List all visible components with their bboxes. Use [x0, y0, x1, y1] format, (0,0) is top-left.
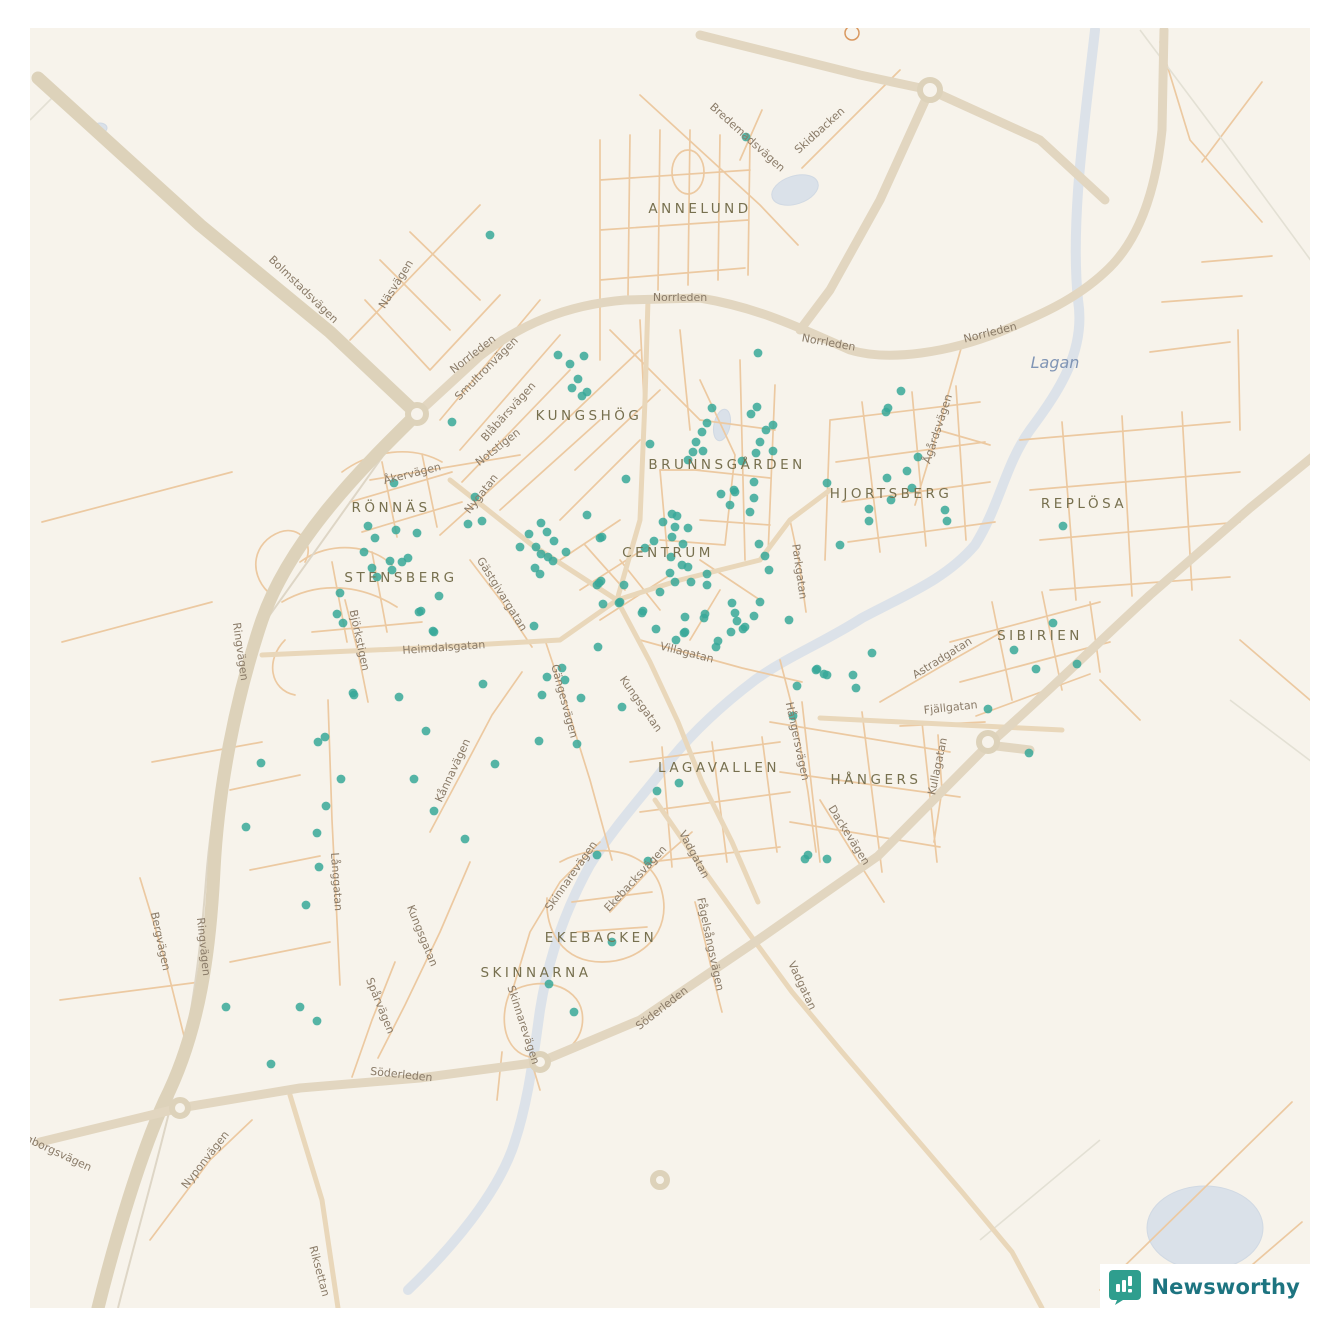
- data-point: [984, 705, 993, 714]
- data-point: [535, 737, 544, 746]
- data-point: [448, 418, 457, 427]
- data-point: [823, 855, 832, 864]
- street-label: Vadgatan: [676, 828, 712, 880]
- data-point: [753, 403, 762, 412]
- data-point: [573, 740, 582, 749]
- data-point: [1049, 619, 1058, 628]
- district-label: SKINNARNA: [480, 965, 591, 981]
- street-label: Parkgatan: [789, 543, 810, 600]
- street-label: Ågårdsvägen: [920, 393, 955, 466]
- data-point: [404, 554, 413, 563]
- district-label: HÅNGERS: [831, 771, 922, 788]
- street-label: Norrleden: [801, 331, 857, 353]
- data-point: [360, 548, 369, 557]
- data-point: [728, 599, 737, 608]
- data-point: [868, 649, 877, 658]
- river-lagan: [93, 30, 1263, 1290]
- district-label: CENTRUM: [622, 545, 714, 561]
- data-point: [550, 537, 559, 546]
- data-point: [668, 533, 677, 542]
- data-point: [717, 490, 726, 499]
- data-point: [897, 387, 906, 396]
- street-label: Heimdalsgatan: [402, 638, 486, 657]
- data-point: [653, 787, 662, 796]
- street-label: Nyponvägen: [179, 1128, 232, 1191]
- data-point: [756, 438, 765, 447]
- data-point: [430, 807, 439, 816]
- data-point: [478, 517, 487, 526]
- district-label: RÖNNÄS: [351, 498, 430, 516]
- data-point: [422, 727, 431, 736]
- data-point: [692, 438, 701, 447]
- data-point: [684, 563, 693, 572]
- data-point: [733, 617, 742, 626]
- data-point: [638, 609, 647, 618]
- data-point: [681, 628, 690, 637]
- data-point: [336, 589, 345, 598]
- street-label: Gängesvägen: [548, 663, 580, 740]
- data-point: [415, 608, 424, 617]
- data-point: [1032, 665, 1041, 674]
- data-point: [712, 643, 721, 652]
- water-label: Lagan: [1031, 353, 1080, 372]
- data-point: [392, 526, 401, 535]
- data-point: [666, 569, 675, 578]
- data-point: [574, 375, 583, 384]
- data-point: [580, 352, 589, 361]
- data-point: [595, 579, 604, 588]
- street-label: Kånnavägen: [432, 737, 473, 805]
- street-label: Villagatan: [659, 640, 715, 666]
- railway: [30, 30, 1310, 1308]
- data-point: [659, 518, 668, 527]
- data-point: [516, 543, 525, 552]
- data-point: [1059, 522, 1068, 531]
- map-frame: BredemadsvägenSkidbackenNorrledenNorrled…: [30, 28, 1310, 1308]
- district-label: LAGAVALLEN: [658, 760, 780, 776]
- data-point: [577, 694, 586, 703]
- data-point: [622, 475, 631, 484]
- data-point: [615, 599, 624, 608]
- data-point: [836, 541, 845, 550]
- data-point: [852, 684, 861, 693]
- data-point: [689, 448, 698, 457]
- street-label: Näsvägen: [376, 258, 416, 311]
- street-label: Ekebacksvägen: [602, 843, 670, 914]
- data-point: [530, 622, 539, 631]
- data-point: [257, 759, 266, 768]
- data-point: [756, 598, 765, 607]
- data-point: [570, 1008, 579, 1017]
- data-point: [350, 691, 359, 700]
- data-point: [242, 823, 251, 832]
- data-point: [750, 612, 759, 621]
- data-point: [599, 600, 608, 609]
- data-point: [884, 404, 893, 413]
- data-point: [620, 581, 629, 590]
- data-point: [750, 478, 759, 487]
- street-label: Bergvägen: [148, 911, 173, 972]
- data-point: [296, 1003, 305, 1012]
- data-point: [671, 523, 680, 532]
- data-point: [536, 570, 545, 579]
- newsworthy-logo-icon: [1108, 1269, 1142, 1305]
- data-point: [762, 426, 771, 435]
- data-point: [333, 610, 342, 619]
- data-point: [364, 522, 373, 531]
- street-label: Fjällgatan: [923, 698, 978, 717]
- district-label: ANNELUND: [648, 201, 751, 217]
- map-page: BredemadsvägenSkidbackenNorrledenNorrled…: [0, 0, 1340, 1340]
- data-point: [731, 609, 740, 618]
- street-label: Ringvägen: [230, 622, 251, 682]
- data-point: [302, 901, 311, 910]
- data-point: [435, 592, 444, 601]
- data-point: [793, 682, 802, 691]
- data-point: [313, 1017, 322, 1026]
- data-point: [413, 529, 422, 538]
- data-point: [313, 829, 322, 838]
- data-point: [698, 428, 707, 437]
- data-point: [568, 384, 577, 393]
- data-point: [727, 628, 736, 637]
- data-point: [750, 494, 759, 503]
- data-point: [583, 511, 592, 520]
- data-point: [525, 530, 534, 539]
- data-point: [461, 835, 470, 844]
- data-point: [543, 673, 552, 682]
- data-point: [315, 863, 324, 872]
- data-point: [656, 588, 665, 597]
- data-point: [754, 349, 763, 358]
- data-point: [761, 552, 770, 561]
- data-point: [671, 578, 680, 587]
- data-point: [708, 404, 717, 413]
- data-point: [339, 619, 348, 628]
- data-point: [267, 1060, 276, 1069]
- data-point: [812, 666, 821, 675]
- newsworthy-wordmark: Newsworthy: [1151, 1275, 1300, 1299]
- district-label: BRUNNSGÅRDEN: [648, 456, 805, 473]
- data-point: [684, 524, 693, 533]
- district-label: SIBIRIEN: [997, 628, 1083, 644]
- data-point: [820, 670, 829, 679]
- data-point: [769, 447, 778, 456]
- data-point: [865, 517, 874, 526]
- newsworthy-watermark: Newsworthy: [1100, 1264, 1310, 1310]
- data-point: [410, 775, 419, 784]
- district-label: KUNGSHÖG: [536, 406, 643, 424]
- data-point: [746, 508, 755, 517]
- street-label: Norrleden: [653, 291, 707, 304]
- data-point: [321, 733, 330, 742]
- data-point: [703, 581, 712, 590]
- data-point: [687, 578, 696, 587]
- data-point: [464, 520, 473, 529]
- data-point: [1073, 660, 1082, 669]
- data-point: [618, 703, 627, 712]
- data-point: [747, 410, 756, 419]
- street-label: Söderleden: [633, 984, 690, 1033]
- data-point: [337, 775, 346, 784]
- data-point: [903, 467, 912, 476]
- data-point: [491, 760, 500, 769]
- data-point: [543, 528, 552, 537]
- data-point: [801, 855, 810, 864]
- data-point: [371, 534, 380, 543]
- data-point: [554, 351, 563, 360]
- data-point: [322, 802, 331, 811]
- district-label: STENSBERG: [344, 570, 457, 586]
- data-point: [849, 671, 858, 680]
- major-roads: [38, 30, 1310, 1308]
- data-point: [1025, 749, 1034, 758]
- data-point: [549, 557, 558, 566]
- data-point: [395, 693, 404, 702]
- map-canvas[interactable]: BredemadsvägenSkidbackenNorrledenNorrled…: [30, 28, 1310, 1308]
- data-point: [765, 566, 774, 575]
- poi-icon: [845, 28, 859, 40]
- data-point: [538, 691, 547, 700]
- street-label: Långgatan: [328, 852, 345, 911]
- data-point: [652, 625, 661, 634]
- district-label: REPLÖSA: [1041, 494, 1127, 512]
- data-point: [537, 519, 546, 528]
- data-point: [386, 557, 395, 566]
- data-point: [943, 517, 952, 526]
- data-point: [566, 360, 575, 369]
- street-label: Norrleden: [962, 320, 1018, 346]
- district-label: HJORTSBERG: [830, 486, 953, 502]
- data-point: [479, 680, 488, 689]
- street-label: Spårvägen: [363, 976, 397, 1036]
- data-point: [594, 643, 603, 652]
- data-point: [865, 505, 874, 514]
- data-point: [562, 548, 571, 557]
- street-label: Hångersvägen: [783, 701, 812, 782]
- data-point: [785, 616, 794, 625]
- data-point: [741, 623, 750, 632]
- data-point: [681, 613, 690, 622]
- data-point: [703, 570, 712, 579]
- data-point: [730, 486, 739, 495]
- data-point: [1010, 646, 1019, 655]
- data-point: [701, 610, 710, 619]
- data-point: [675, 779, 684, 788]
- data-point: [578, 392, 587, 401]
- data-point: [703, 419, 712, 428]
- street-label: Gästgivargatan: [474, 555, 530, 634]
- data-point: [726, 501, 735, 510]
- minor-roads: [42, 42, 1310, 1308]
- data-point: [430, 628, 439, 637]
- data-point: [755, 540, 764, 549]
- data-point: [941, 506, 950, 515]
- data-point: [596, 534, 605, 543]
- data-point: [222, 1003, 231, 1012]
- data-point: [646, 440, 655, 449]
- street-label: Björkstigen: [347, 609, 373, 672]
- district-label: EKEBACKEN: [545, 930, 658, 946]
- data-point: [699, 447, 708, 456]
- street-label: Kungsgatan: [404, 903, 440, 968]
- data-point: [486, 231, 495, 240]
- data-point: [883, 474, 892, 483]
- data-point: [673, 512, 682, 521]
- street-label: Astradgatan: [910, 635, 974, 682]
